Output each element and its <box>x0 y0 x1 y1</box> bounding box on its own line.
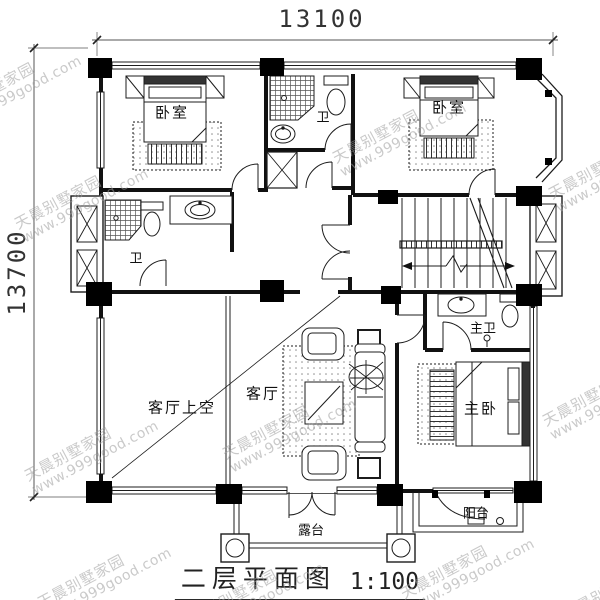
closet <box>267 152 297 188</box>
room-label-terrace: 露台 <box>298 520 324 539</box>
dimension-left: 13700 <box>3 228 31 315</box>
room-label-bedroom-top-right: 卧室 <box>432 97 466 118</box>
floor-plan-drawing <box>0 0 600 600</box>
right-window-bay <box>530 196 562 296</box>
plan-title-scale: 1:100 <box>350 569 419 595</box>
bay-window <box>536 74 562 182</box>
plan-title-text: 二层平面图 <box>181 559 336 595</box>
room-label-living: 客厅 <box>246 383 280 404</box>
dimension-top: 13100 <box>278 5 365 33</box>
room-label-balcony: 阳台 <box>463 503 489 522</box>
bed-top-right <box>404 76 494 170</box>
room-label-bath-left: 卫 <box>129 248 142 267</box>
stairs <box>400 198 515 288</box>
room-label-bath-top: 卫 <box>316 107 329 126</box>
bed-top-left <box>126 76 224 170</box>
bath-left-fixtures <box>105 200 163 240</box>
room-label-master-bedroom: 主卧 <box>464 398 498 419</box>
floor-plan-page: 13100 13700 卧室 卫 卧室 卫 主卫 客厅上空 客厅 主卧 露台 阳… <box>0 0 600 600</box>
bath-top-fixtures <box>270 76 348 143</box>
sofa-set <box>283 328 385 480</box>
vanity-fixtures <box>170 196 232 224</box>
room-label-master-bath: 主卫 <box>470 318 496 337</box>
left-window-bay <box>71 196 103 292</box>
room-label-living-void: 客厅上空 <box>148 397 216 418</box>
plan-title: 二层平面图 1:100 <box>175 559 425 600</box>
room-label-bedroom-top-left: 卧室 <box>155 102 189 123</box>
